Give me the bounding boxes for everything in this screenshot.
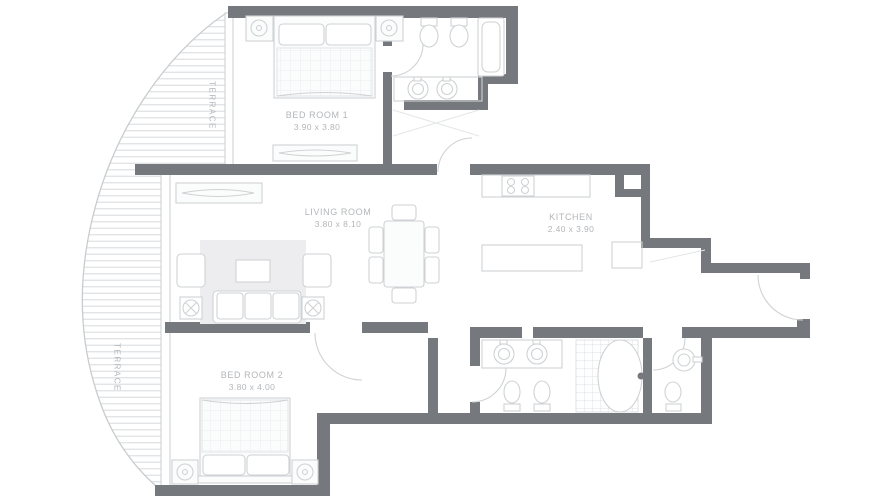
toilet-icon [666, 404, 681, 411]
room-name: BED ROOM 2 [192, 369, 312, 381]
headboard [198, 476, 292, 483]
floor-plan: BED ROOM 1 3.90 x 3.80 LIVING ROOM 3.80 … [0, 0, 890, 500]
dining-table [384, 221, 424, 287]
blanket [202, 400, 288, 452]
entry-closet-line [650, 250, 705, 262]
bedroom1-furniture [246, 16, 403, 161]
toilet-icon [504, 404, 520, 411]
room-name: LIVING ROOM [278, 206, 398, 218]
pillow [203, 455, 245, 475]
dining-chair [369, 257, 383, 283]
dining-chair [425, 227, 439, 253]
sink-icon [408, 79, 428, 99]
bidet-icon [534, 404, 550, 411]
room-dims: 3.80 x 4.00 [192, 381, 312, 393]
powder-room-fixtures [665, 349, 702, 411]
sink-icon [673, 349, 695, 371]
living-room-label: LIVING ROOM 3.80 x 8.10 [278, 206, 398, 230]
armchair [303, 254, 331, 287]
room-dims: 2.40 x 3.90 [511, 223, 631, 235]
room-dims: 3.90 x 3.80 [257, 121, 377, 133]
sink-icon [527, 344, 547, 364]
armchair [177, 254, 205, 287]
corridor-door-arc [438, 138, 472, 172]
pillow [247, 455, 289, 475]
blanket [277, 48, 372, 96]
sofa [213, 291, 301, 323]
bathtub-icon [598, 340, 642, 412]
sink-icon [437, 79, 457, 99]
bedroom1-label: BED ROOM 1 3.90 x 3.80 [257, 109, 377, 133]
sink-icon [494, 344, 514, 364]
pillow [279, 24, 324, 45]
living-room-furniture [176, 183, 439, 324]
room-name: KITCHEN [511, 211, 631, 223]
floor-plan-drawing [0, 0, 890, 500]
coffee-table [236, 260, 270, 282]
bedroom2-door-arc [315, 333, 362, 380]
entry-door-arc [758, 275, 803, 320]
kitchen-island [482, 245, 582, 271]
stove-icon [502, 176, 534, 196]
room-dims: 3.80 x 8.10 [278, 218, 398, 230]
dining-chair [369, 227, 383, 253]
bedroom1-bath-door-arc [391, 44, 423, 76]
bathroom2-door-arc [472, 368, 506, 402]
fridge-icon [612, 242, 642, 268]
sideboard [176, 183, 262, 203]
bench [273, 145, 357, 161]
room-name: BED ROOM 1 [257, 109, 377, 121]
kitchen-label: KITCHEN 2.40 x 3.90 [511, 211, 631, 235]
bedroom2-furniture [172, 398, 318, 484]
bedroom1-window [225, 13, 233, 165]
bedroom2-label: BED ROOM 2 3.80 x 4.00 [192, 369, 312, 393]
terrace-lower-label: TERRACE [113, 333, 122, 403]
kitchen-counter [482, 175, 590, 197]
terrace-upper-label: TERRACE [208, 71, 217, 141]
dining-chair [392, 288, 416, 303]
tub-faucet [638, 373, 645, 380]
pillow [326, 24, 371, 45]
dining-chair [425, 257, 439, 283]
bathroom2-fixtures [482, 340, 645, 412]
